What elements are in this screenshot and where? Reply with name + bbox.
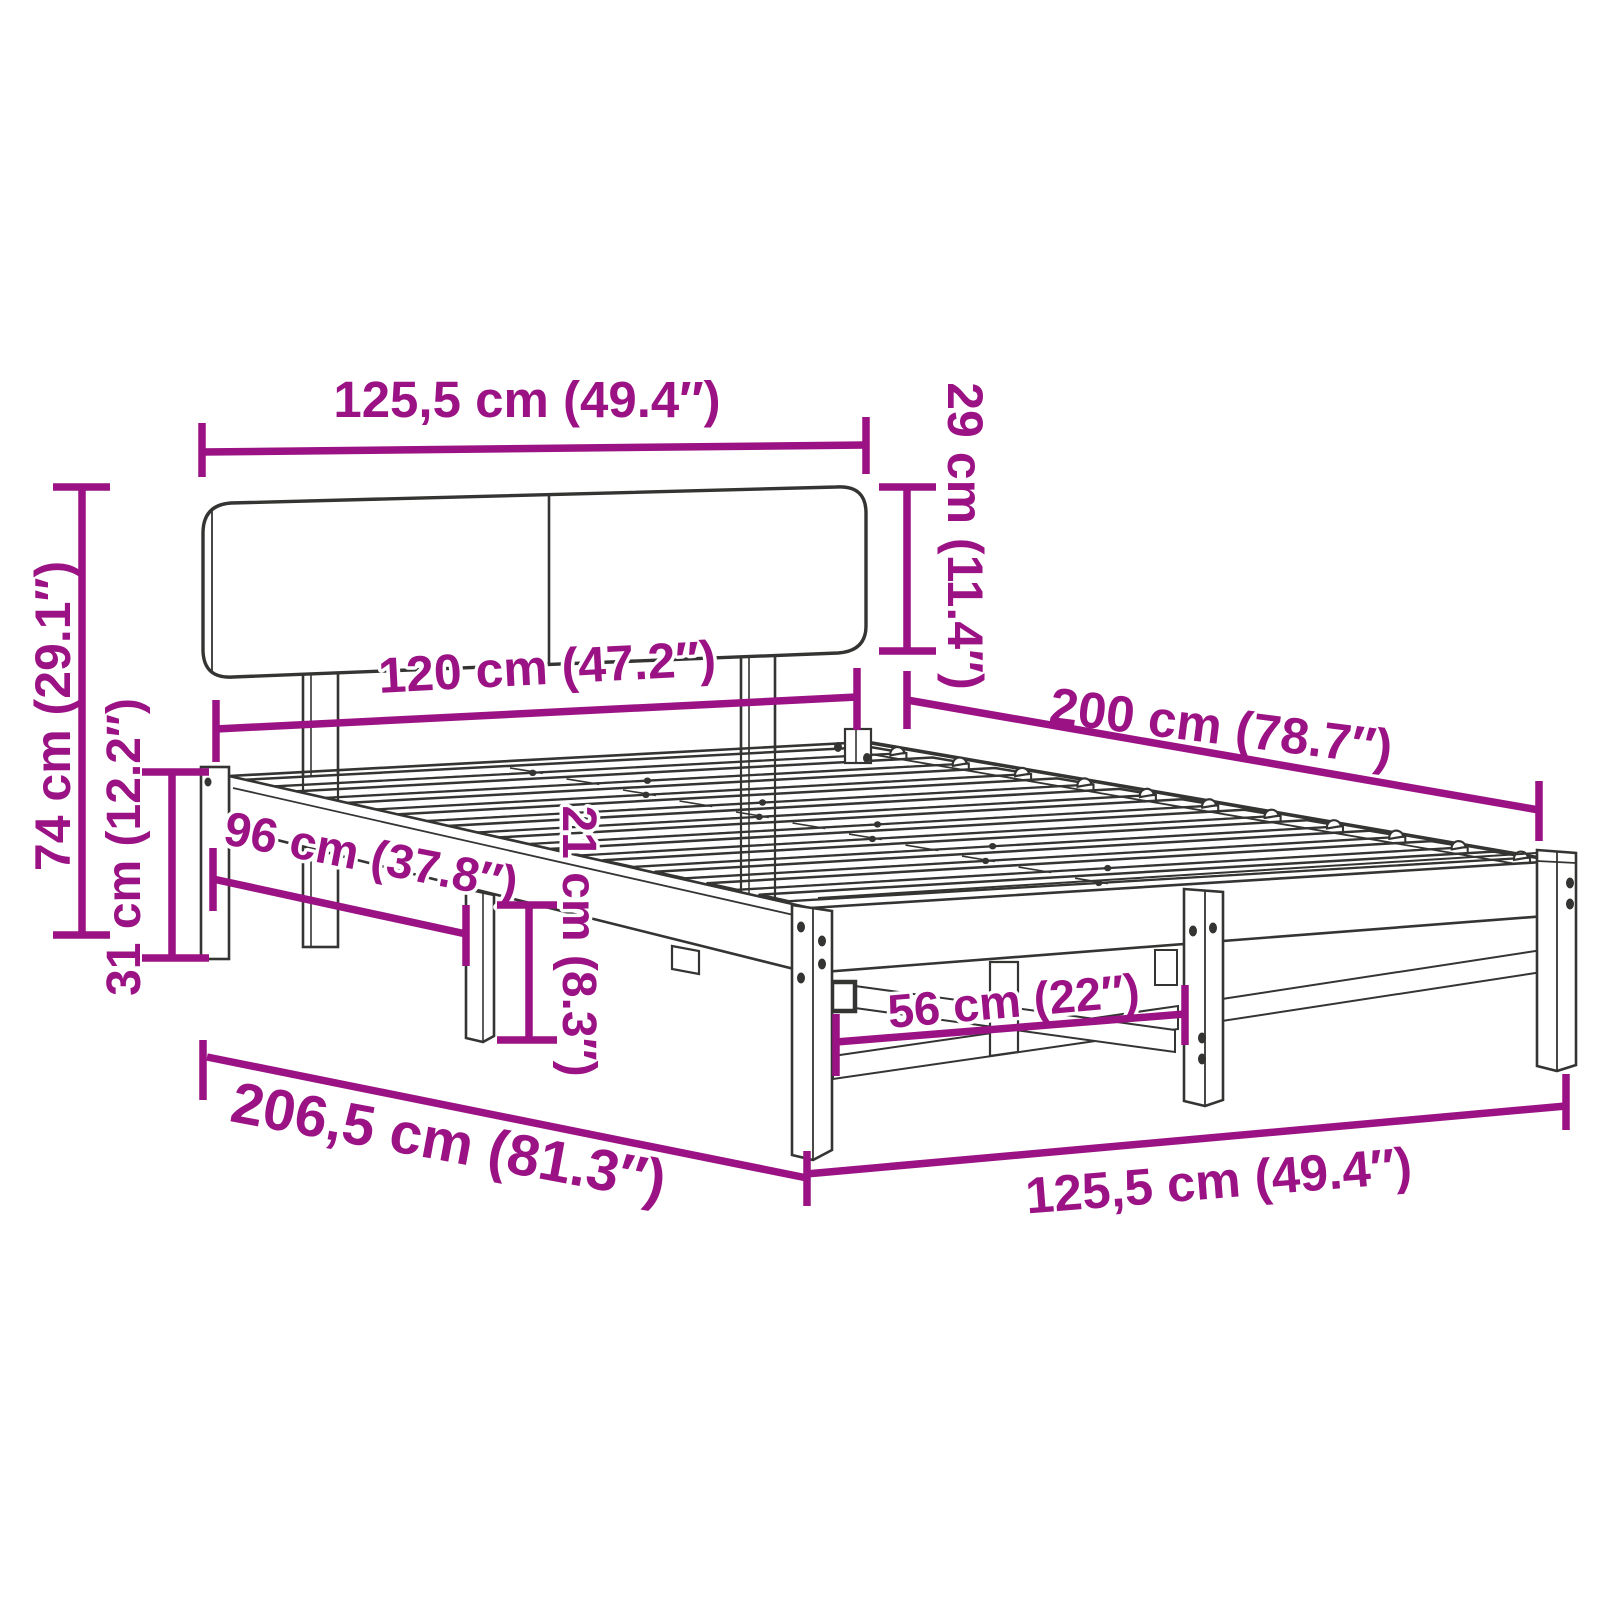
svg-text:21 cm (8.3″): 21 cm (8.3″) [552, 805, 605, 1076]
svg-text:125,5 cm (49.4″): 125,5 cm (49.4″) [333, 371, 720, 428]
svg-text:31 cm (12.2″): 31 cm (12.2″) [98, 698, 151, 996]
svg-text:29 cm (11.4″): 29 cm (11.4″) [937, 382, 993, 689]
svg-text:74 cm (29.1″): 74 cm (29.1″) [25, 561, 81, 871]
